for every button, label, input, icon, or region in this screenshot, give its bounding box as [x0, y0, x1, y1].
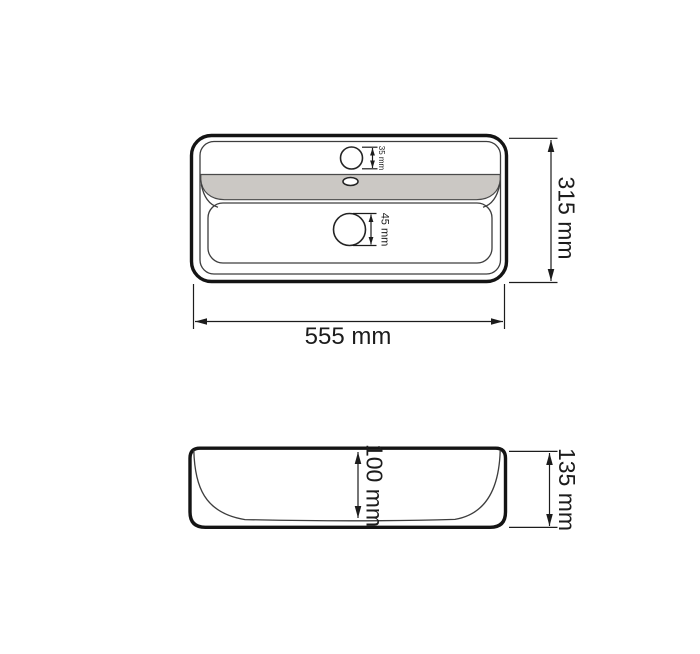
- drain-hole: [334, 214, 366, 246]
- height-dimension: 135 mm: [509, 448, 580, 531]
- drawing-canvas: 35 mm 45 mm 555 mm 315 mm: [0, 0, 700, 654]
- depth-dim-label: 315 mm: [553, 176, 579, 259]
- drain-hole-dim-label: 45 mm: [379, 213, 391, 247]
- faucet-hole: [341, 147, 363, 169]
- inner-depth-dimension: 100 mm: [358, 444, 387, 527]
- overflow-hole: [343, 178, 358, 186]
- side-view-outer-outline: [190, 448, 506, 527]
- height-dim-label: 135 mm: [554, 448, 580, 531]
- top-view: 35 mm 45 mm: [192, 136, 507, 282]
- depth-dimension: 315 mm: [509, 138, 579, 282]
- width-dim-label: 555 mm: [305, 323, 392, 350]
- inner-depth-dim-label: 100 mm: [361, 444, 387, 527]
- width-dimension: 555 mm: [194, 284, 505, 350]
- side-view: 100 mm: [190, 444, 506, 527]
- washbasin-technical-drawing: 35 mm 45 mm 555 mm 315 mm: [0, 0, 700, 654]
- faucet-hole-dim-label: 35 mm: [377, 146, 386, 171]
